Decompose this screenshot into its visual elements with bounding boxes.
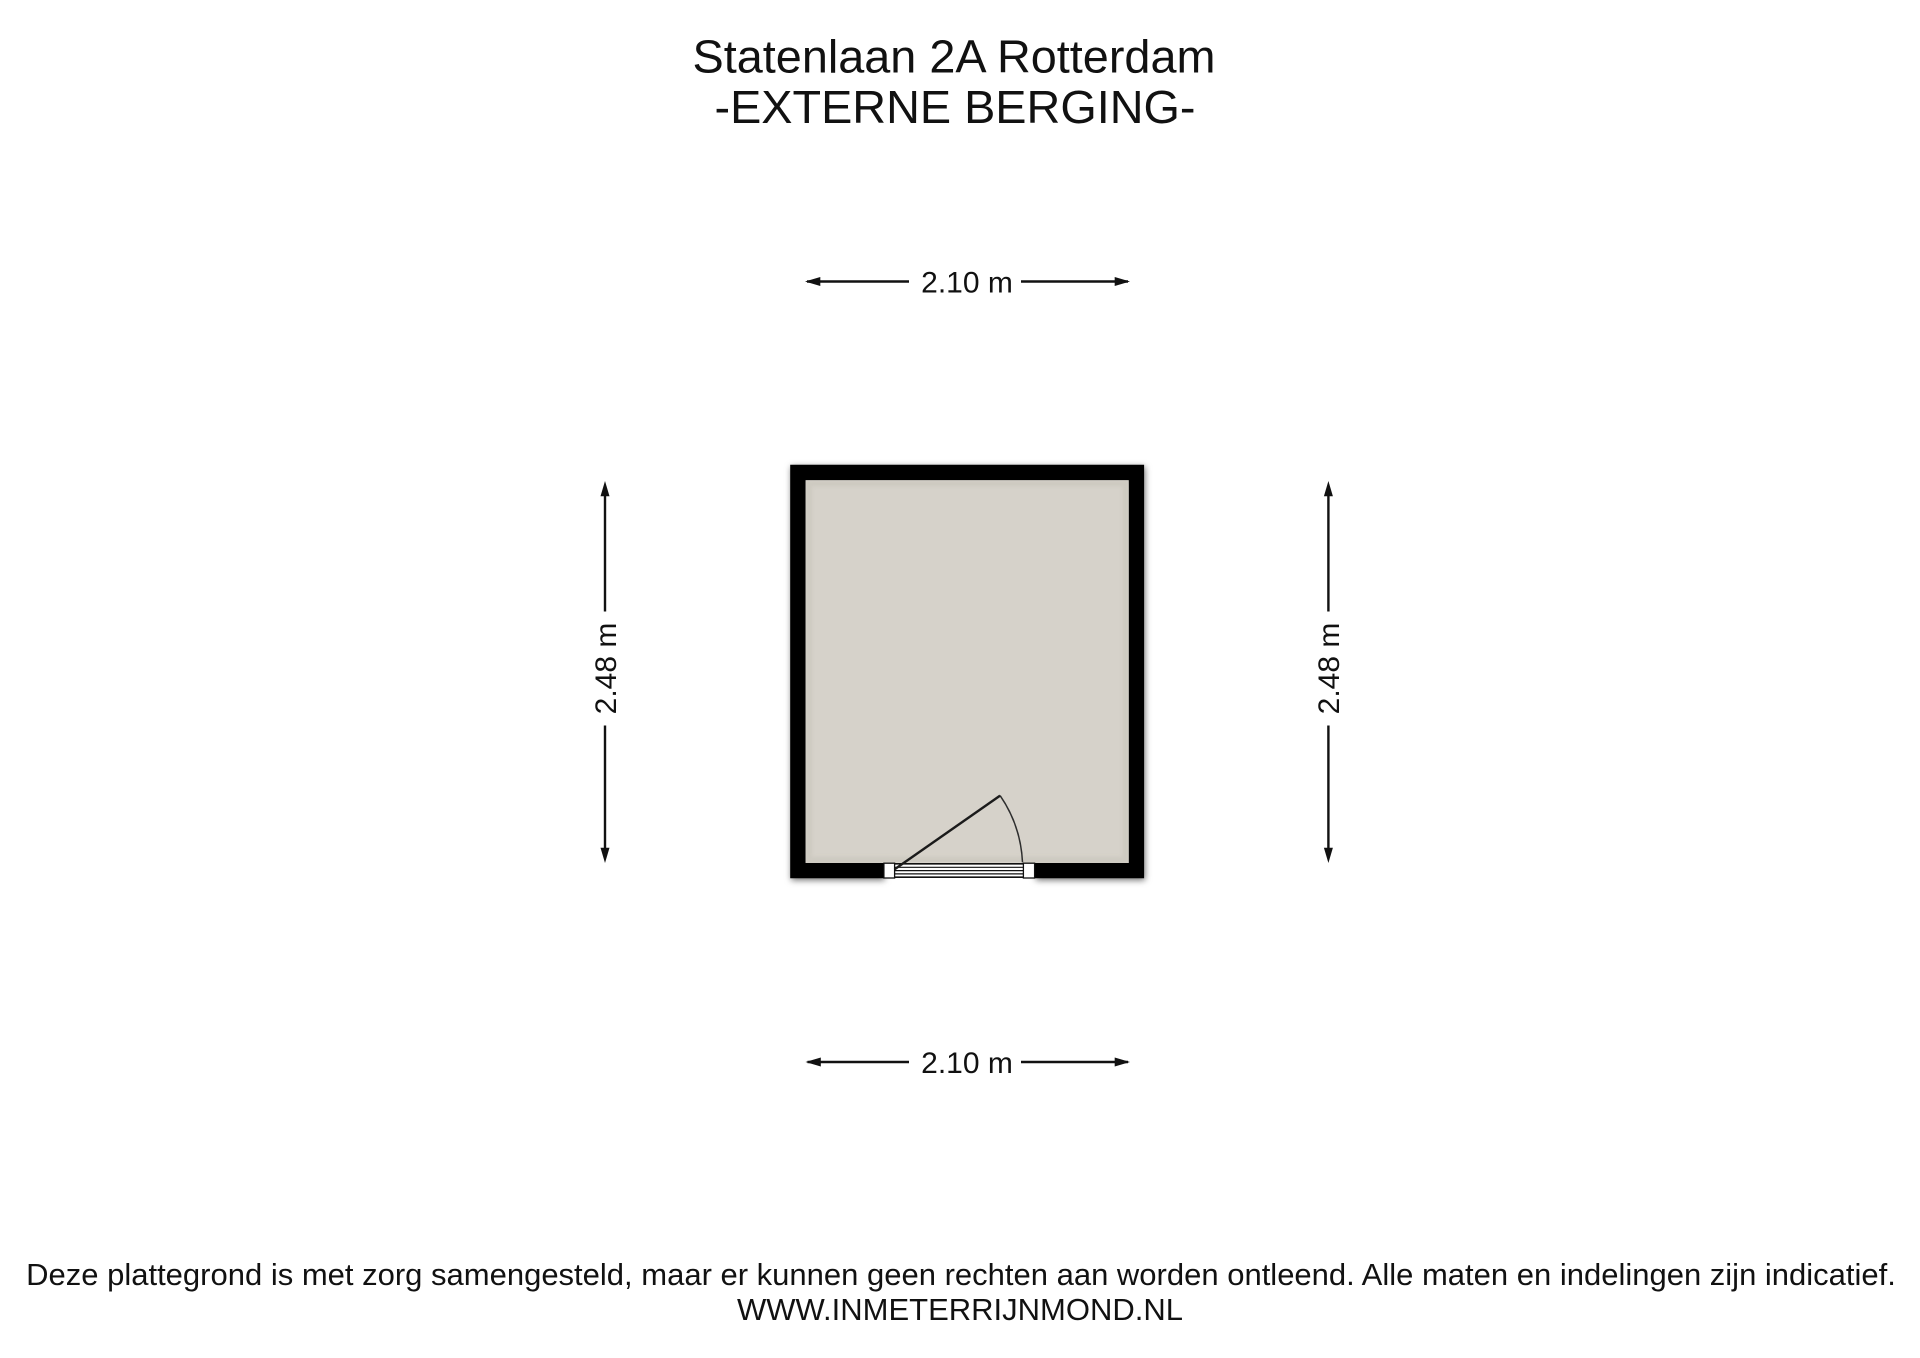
svg-text:WWW.INMETERRIJNMOND.NL: WWW.INMETERRIJNMOND.NL	[737, 1292, 1183, 1327]
svg-text:2.10 m: 2.10 m	[921, 266, 1013, 299]
svg-text:Statenlaan 2A Rotterdam: Statenlaan 2A Rotterdam	[693, 31, 1216, 83]
svg-text:2.48 m: 2.48 m	[1313, 623, 1346, 715]
svg-text:2.10 m: 2.10 m	[921, 1047, 1013, 1080]
svg-text:2.48 m: 2.48 m	[590, 623, 623, 715]
svg-text:-EXTERNE BERGING-: -EXTERNE BERGING-	[714, 81, 1195, 133]
svg-text:Deze plattegrond is met zorg s: Deze plattegrond is met zorg samengestel…	[26, 1257, 1896, 1292]
